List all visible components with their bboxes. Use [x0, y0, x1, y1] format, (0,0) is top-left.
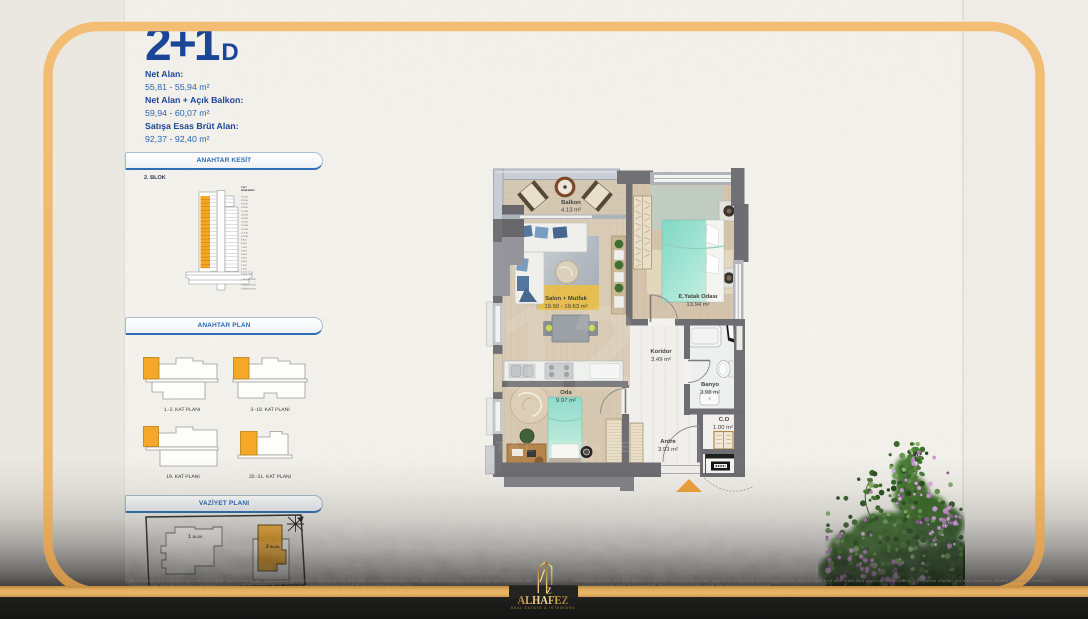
svg-text:REAL ESTATE & INTERIORS: REAL ESTATE & INTERIORS	[511, 606, 575, 610]
svg-text:ALHAFEZ: ALHAFEZ	[518, 593, 569, 607]
